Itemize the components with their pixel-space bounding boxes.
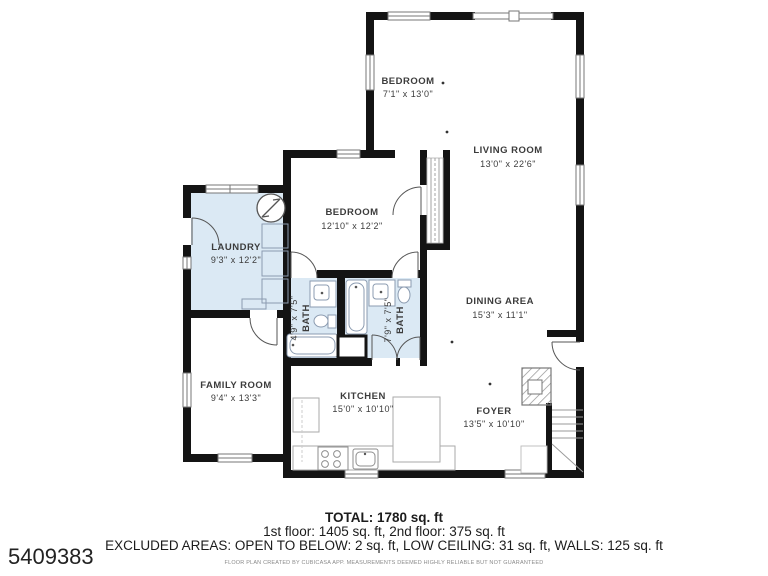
electrical-panel-icon: [257, 194, 285, 222]
window: [337, 150, 360, 158]
room-label-living-room: LIVING ROOM: [473, 145, 542, 156]
room-dims-kitchen: 15'0" x 10'10": [332, 404, 393, 414]
listing-id: 5409383: [8, 544, 94, 570]
floor-areas-text: 1st floor: 1405 sq. ft, 2nd floor: 375 s…: [0, 525, 768, 539]
room-label-family-room: FAMILY ROOM: [200, 380, 271, 391]
room-label-kitchen: KITCHEN: [340, 391, 386, 402]
room-dims-bedroom-upper: 7'1" x 13'0": [383, 89, 433, 99]
window: [576, 55, 584, 98]
door: [392, 252, 418, 278]
room-label-bath-small: BATH: [301, 304, 312, 332]
room-label-bedroom-main: BEDROOM: [325, 207, 378, 218]
room-dims-family-room: 9'4" x 13'3": [211, 393, 261, 403]
room-dims-bath-large: 7'9" x 7'5": [383, 298, 393, 343]
room-dims-dining-area: 15'3" x 11'1": [472, 310, 527, 320]
room-dims-bath-small: 4'9" x 7'5": [289, 296, 299, 341]
door: [250, 318, 277, 345]
stairs-upper: [427, 158, 443, 243]
room-dims-foyer: 13'5" x 10'10": [463, 419, 524, 429]
window: [345, 470, 378, 478]
floor-plan-page: BEDROOM 7'1" x 13'0" LIVING ROOM 13'0" x…: [0, 0, 768, 576]
window: [206, 185, 258, 193]
chimney: [522, 368, 551, 405]
total-area-text: TOTAL: 1780 sq. ft: [0, 511, 768, 525]
window: [576, 165, 584, 205]
room-dims-bedroom-main: 12'10" x 12'2": [321, 221, 382, 231]
door: [291, 252, 317, 278]
room-label-dining-area: DINING AREA: [466, 296, 534, 307]
window: [218, 454, 252, 462]
window: [183, 257, 191, 269]
window: [183, 373, 191, 407]
window: [388, 12, 430, 20]
floor-plan-drawing: BEDROOM 7'1" x 13'0" LIVING ROOM 13'0" x…: [0, 0, 768, 576]
room-label-laundry: LAUNDRY: [211, 242, 261, 253]
sink-icon: [353, 449, 378, 469]
excluded-areas-text: EXCLUDED AREAS: OPEN TO BELOW: 2 sq. ft,…: [0, 539, 768, 553]
summary-footer: TOTAL: 1780 sq. ft 1st floor: 1405 sq. f…: [0, 511, 768, 566]
room-dims-laundry: 9'3" x 12'2": [211, 255, 261, 265]
door: [393, 187, 421, 215]
stove-icon: [318, 447, 348, 470]
window-ribbon: [473, 11, 553, 21]
room-dims-living-room: 13'0" x 22'6": [480, 159, 536, 169]
window: [366, 55, 374, 90]
room-label-bedroom-upper: BEDROOM: [381, 76, 434, 87]
room-label-foyer: FOYER: [476, 406, 511, 417]
room-label-bath-large: BATH: [395, 306, 406, 334]
disclaimer-text: FLOOR PLAN CREATED BY CUBICASA APP. MEAS…: [0, 560, 768, 566]
door: [552, 342, 580, 370]
